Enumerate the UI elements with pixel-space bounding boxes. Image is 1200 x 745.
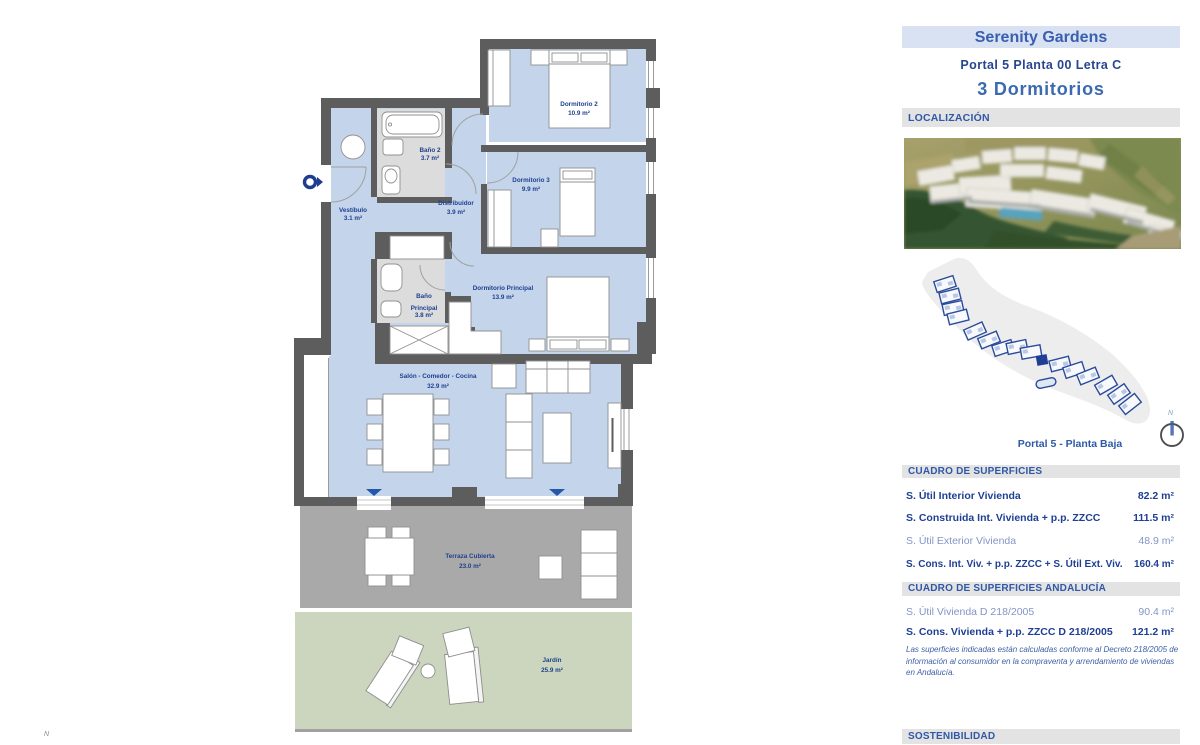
svg-text:Dormitorio Principal: Dormitorio Principal	[473, 285, 534, 292]
svg-text:Baño 2: Baño 2	[420, 147, 441, 154]
svg-text:Distribuidor: Distribuidor	[438, 200, 474, 207]
svg-text:9.9 m²: 9.9 m²	[522, 186, 540, 193]
svg-text:23.0 m²: 23.0 m²	[459, 563, 481, 570]
svg-text:32.9 m²: 32.9 m²	[427, 383, 449, 390]
svg-text:13.9 m²: 13.9 m²	[492, 294, 514, 301]
svg-text:10.9 m²: 10.9 m²	[568, 110, 590, 117]
svg-text:25.9 m²: 25.9 m²	[541, 667, 563, 674]
svg-text:3.1 m²: 3.1 m²	[344, 215, 362, 222]
svg-text:Principal: Principal	[411, 305, 438, 312]
svg-text:Terraza Cubierta: Terraza Cubierta	[445, 553, 495, 560]
svg-text:3.7 m²: 3.7 m²	[421, 155, 439, 162]
svg-text:Dormitorio 2: Dormitorio 2	[560, 101, 598, 108]
svg-text:Dormitorio 3: Dormitorio 3	[512, 177, 550, 184]
svg-text:Jardín: Jardín	[543, 657, 562, 664]
svg-text:3.9 m²: 3.9 m²	[447, 209, 465, 216]
svg-text:Vestíbulo: Vestíbulo	[339, 207, 367, 214]
svg-text:3.8 m²: 3.8 m²	[415, 312, 433, 319]
svg-text:N: N	[1168, 410, 1174, 417]
svg-text:Salón - Comedor - Cocina: Salón - Comedor - Cocina	[400, 373, 477, 380]
svg-text:Baño: Baño	[416, 293, 432, 300]
